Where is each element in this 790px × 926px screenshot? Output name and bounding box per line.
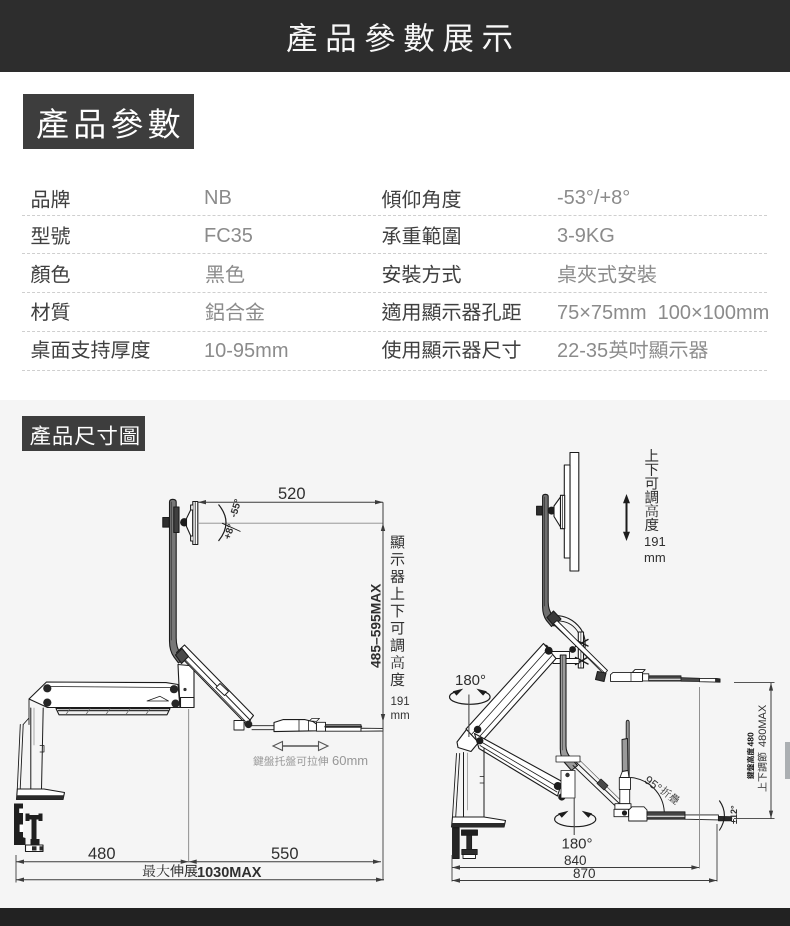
svg-text:+8°: +8° xyxy=(222,523,237,541)
svg-text:95°: 95° xyxy=(642,773,665,795)
svg-text:180°: 180° xyxy=(562,836,593,853)
svg-text:-55°: -55° xyxy=(228,498,244,519)
svg-text:870: 870 xyxy=(573,866,596,881)
svg-text:191: 191 xyxy=(391,696,410,708)
svg-text:480MAX: 480MAX xyxy=(757,704,769,747)
svg-text:mm: mm xyxy=(391,710,410,722)
svg-text:480: 480 xyxy=(746,732,756,746)
svg-text:485–595MAX: 485–595MAX xyxy=(369,583,384,668)
svg-text:mm: mm xyxy=(644,550,666,565)
svg-text:1030MAX: 1030MAX xyxy=(197,865,262,881)
svg-text:550: 550 xyxy=(271,845,299,863)
svg-text:480: 480 xyxy=(88,845,116,863)
svg-text:180°: 180° xyxy=(455,672,486,689)
svg-text:191: 191 xyxy=(644,534,666,549)
svg-text:520: 520 xyxy=(278,485,306,503)
svg-text:60mm: 60mm xyxy=(332,753,368,768)
svg-text:±12°: ±12° xyxy=(729,805,739,824)
